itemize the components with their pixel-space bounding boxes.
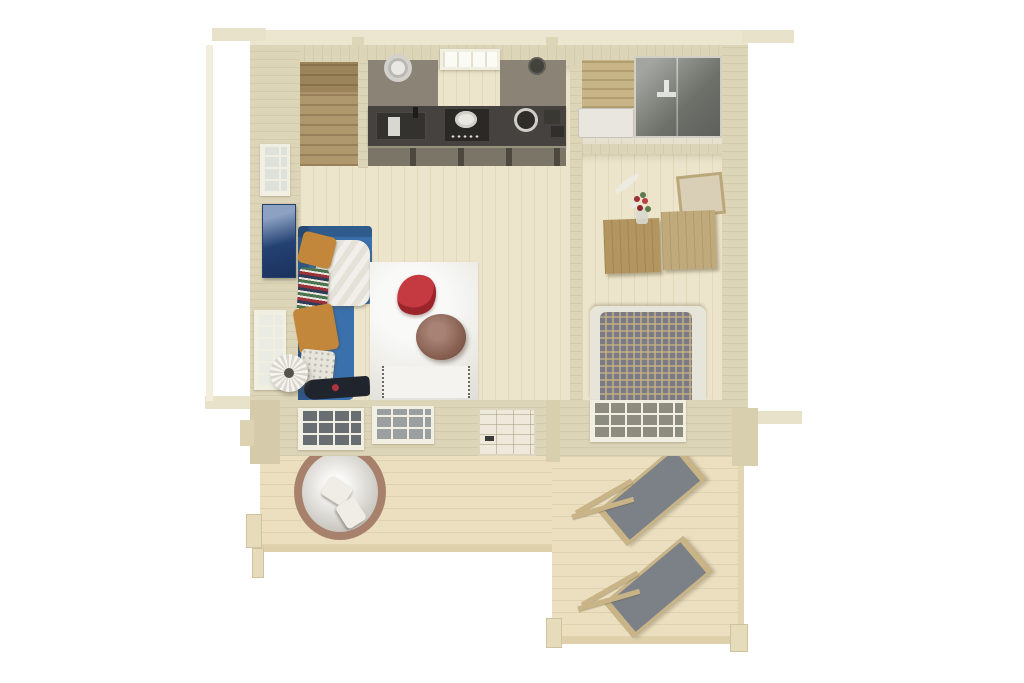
deck-post: [546, 618, 562, 648]
wall-closet-partition: [358, 62, 368, 168]
hob-knobs: [450, 134, 480, 139]
guitar-soundhole: [332, 384, 339, 391]
kitchen-bowl: [514, 108, 538, 132]
deck-post: [730, 624, 748, 652]
junction-log-post: [546, 400, 560, 462]
log-end-tab: [240, 420, 254, 446]
front-door: [478, 408, 536, 456]
shower-cabin: [634, 56, 722, 138]
wall-front: [250, 400, 748, 456]
front-window-left: [298, 408, 364, 450]
round-ottoman: [416, 314, 466, 360]
kitchen-drawer-row: [368, 146, 566, 166]
dresser-section-left: [603, 218, 661, 274]
shower-head-icon: [657, 92, 676, 97]
roof-overhang-top-right: [742, 30, 794, 43]
corner-log-post-left: [250, 400, 280, 464]
ceiling-lamp-icon: [528, 57, 546, 75]
log-end-tab: [546, 37, 558, 46]
deck-post: [246, 514, 262, 548]
cooking-pot: [455, 111, 477, 128]
window-panes: [593, 403, 683, 439]
window-left-upper: [260, 144, 290, 196]
front-window-left-2: [372, 406, 434, 444]
roof-overhang-top-left: [212, 28, 266, 41]
eave-edge-left: [206, 45, 213, 401]
wall-bathroom-partition: [582, 144, 722, 154]
kitchen-sink: [376, 112, 426, 140]
faucet-icon: [413, 107, 418, 118]
kitchen-window: [440, 49, 500, 70]
window-panes: [375, 409, 431, 441]
window-panes: [263, 147, 287, 193]
deck-post: [252, 548, 264, 578]
rug-runner-panel: [382, 366, 470, 398]
corner-log-post-right: [732, 408, 758, 466]
small-appliance: [544, 110, 560, 124]
wall-art: [262, 204, 296, 278]
log-end-tab: [352, 37, 364, 46]
pillow-ochre: [292, 303, 339, 355]
range-hood-icon: [384, 54, 412, 82]
small-appliance: [551, 126, 564, 137]
front-window-bedroom: [590, 400, 686, 442]
door-handle-icon: [485, 436, 494, 441]
cabin-floorplan-render: [0, 0, 1024, 683]
round-wicker-daybed: [294, 444, 386, 540]
window-panes: [301, 411, 361, 447]
wardrobe-closet: [300, 62, 358, 166]
floor-lamp: [270, 354, 308, 392]
flower-bouquet: [634, 196, 640, 202]
window-panes: [443, 52, 497, 67]
wall-right: [722, 45, 748, 432]
bathroom-wooden-shelf: [582, 60, 634, 108]
dresser-section-right: [661, 210, 717, 270]
flower-vase: [636, 208, 648, 224]
lamp-pole: [284, 368, 294, 378]
washbasin: [578, 108, 634, 138]
kitchen-towel: [388, 117, 400, 136]
dresser: [603, 210, 717, 276]
plaid-duvet: [600, 312, 692, 400]
